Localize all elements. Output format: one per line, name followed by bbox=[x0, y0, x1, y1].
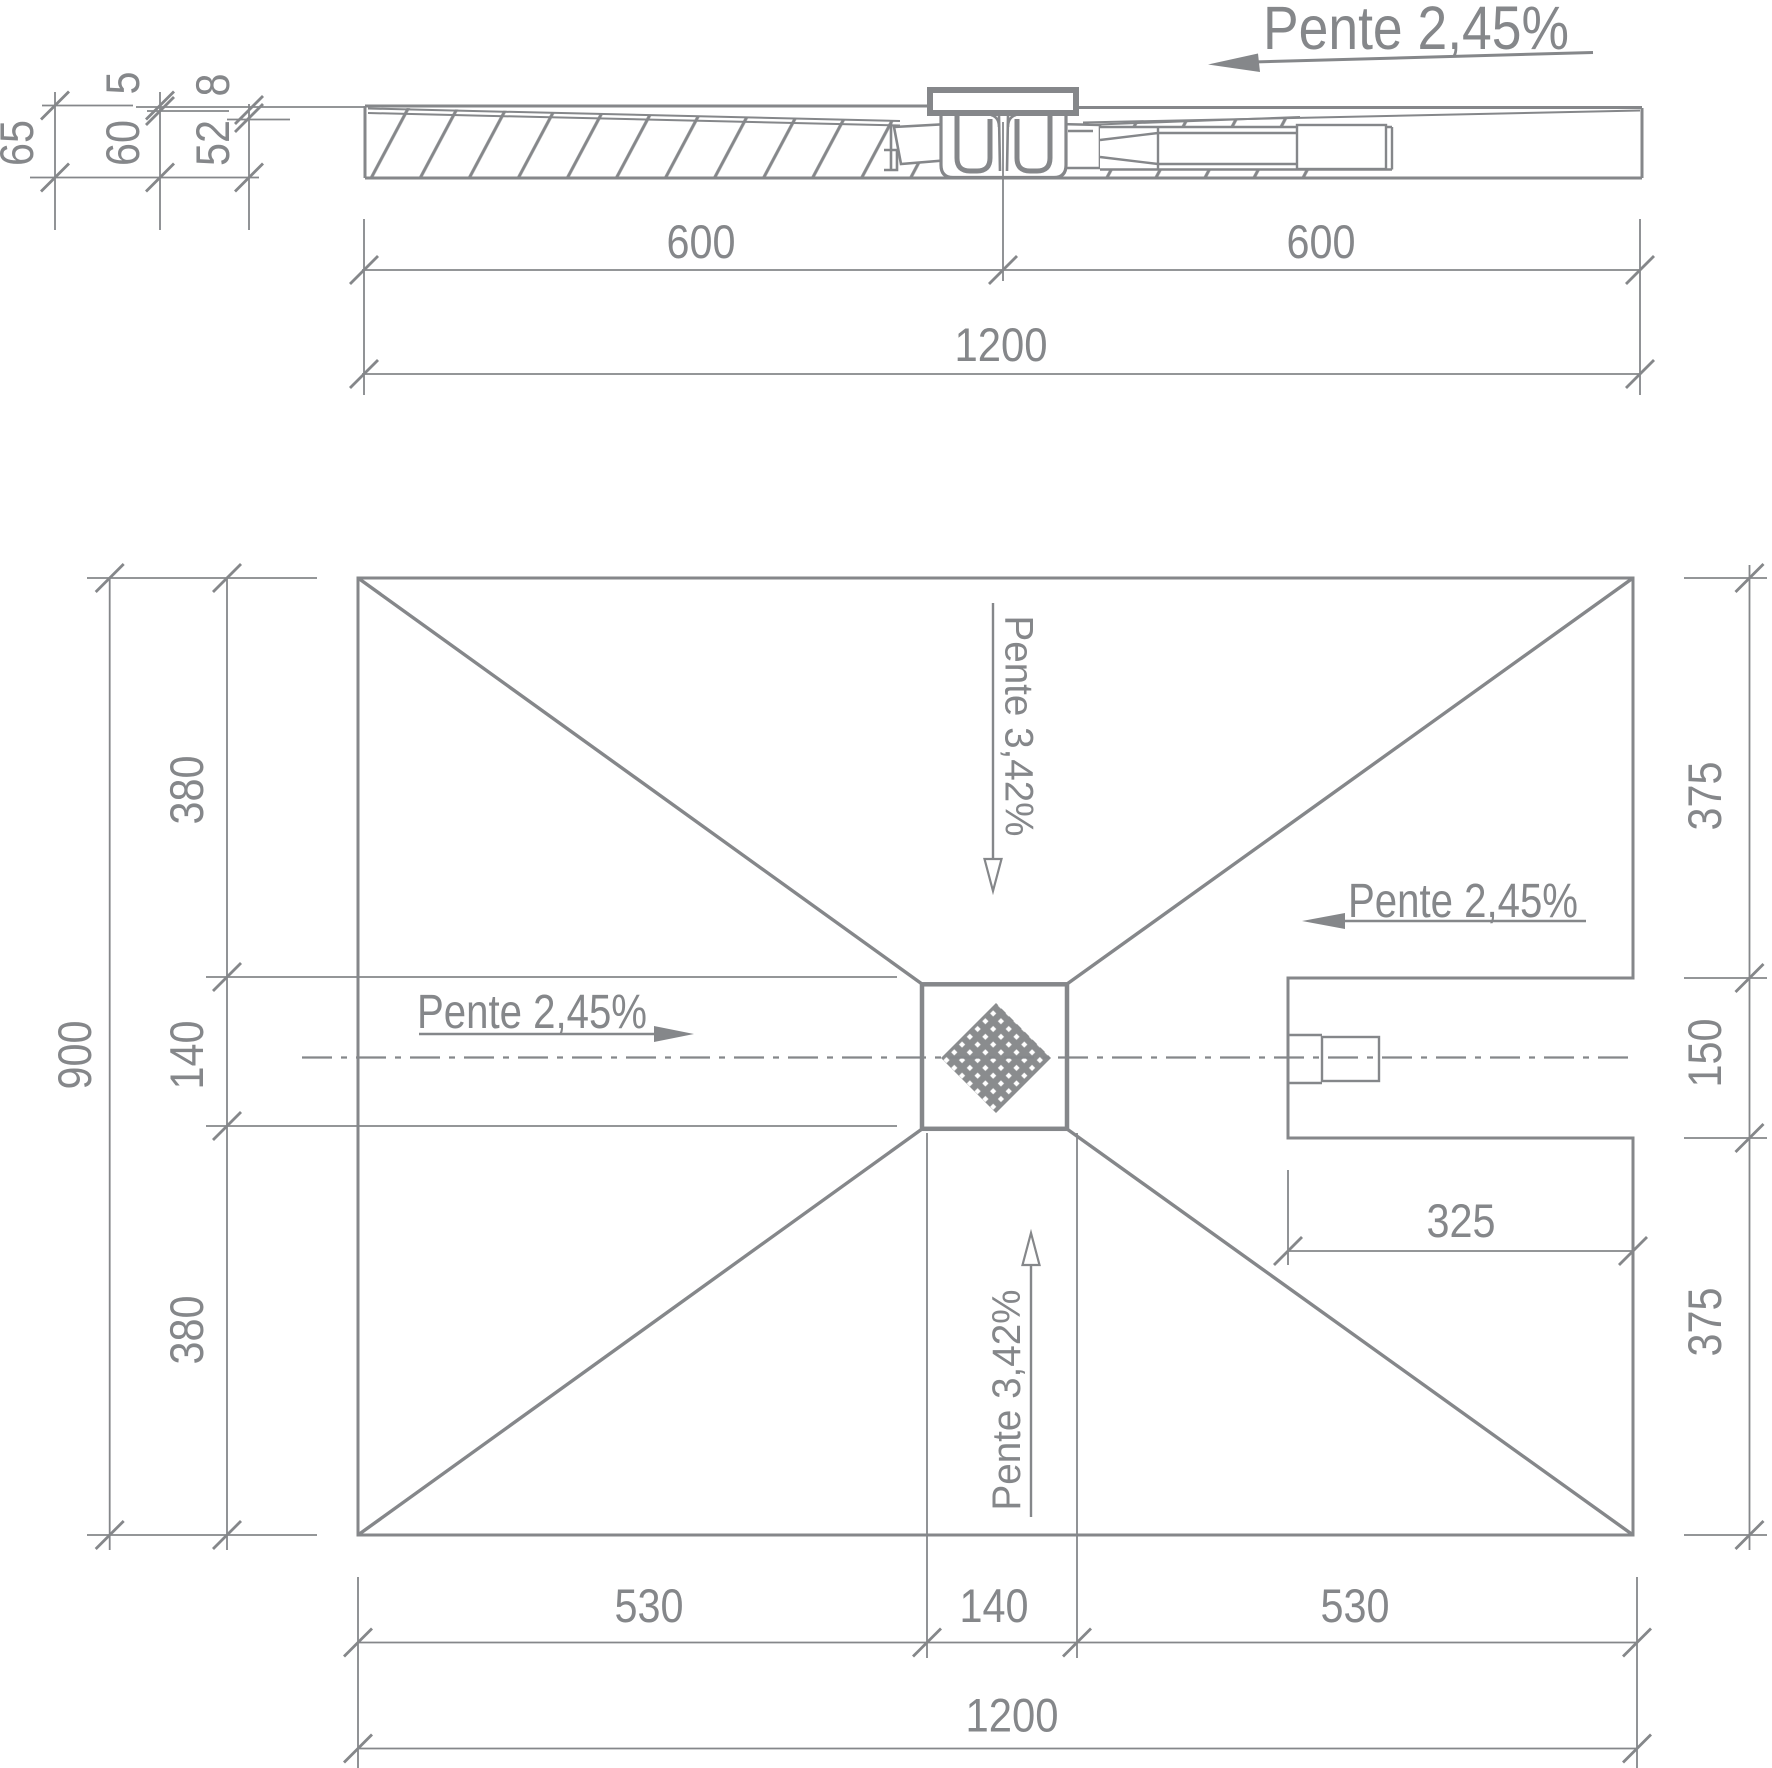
svg-text:1200: 1200 bbox=[955, 318, 1048, 371]
svg-text:600: 600 bbox=[1287, 215, 1356, 268]
svg-text:Pente 2,45%: Pente 2,45% bbox=[1263, 0, 1569, 62]
svg-text:5: 5 bbox=[96, 72, 149, 95]
svg-text:150: 150 bbox=[1678, 1019, 1731, 1088]
svg-text:140: 140 bbox=[160, 1021, 213, 1090]
svg-text:140: 140 bbox=[960, 1579, 1029, 1632]
svg-text:65: 65 bbox=[0, 120, 43, 166]
svg-text:8: 8 bbox=[186, 74, 239, 97]
svg-text:380: 380 bbox=[160, 1296, 213, 1365]
svg-text:530: 530 bbox=[615, 1579, 684, 1632]
svg-text:Pente 3,42%: Pente 3,42% bbox=[997, 616, 1041, 837]
svg-text:380: 380 bbox=[160, 756, 213, 825]
svg-text:900: 900 bbox=[48, 1021, 101, 1090]
svg-text:Pente 2,45%: Pente 2,45% bbox=[417, 986, 647, 1039]
svg-text:1200: 1200 bbox=[966, 1689, 1059, 1742]
svg-text:60: 60 bbox=[96, 120, 149, 166]
svg-text:600: 600 bbox=[667, 215, 736, 268]
svg-text:375: 375 bbox=[1678, 1288, 1731, 1357]
svg-text:52: 52 bbox=[186, 120, 239, 166]
svg-text:Pente 3,42%: Pente 3,42% bbox=[985, 1290, 1029, 1511]
svg-text:375: 375 bbox=[1678, 762, 1731, 831]
svg-text:325: 325 bbox=[1427, 1194, 1496, 1247]
svg-text:530: 530 bbox=[1321, 1579, 1390, 1632]
